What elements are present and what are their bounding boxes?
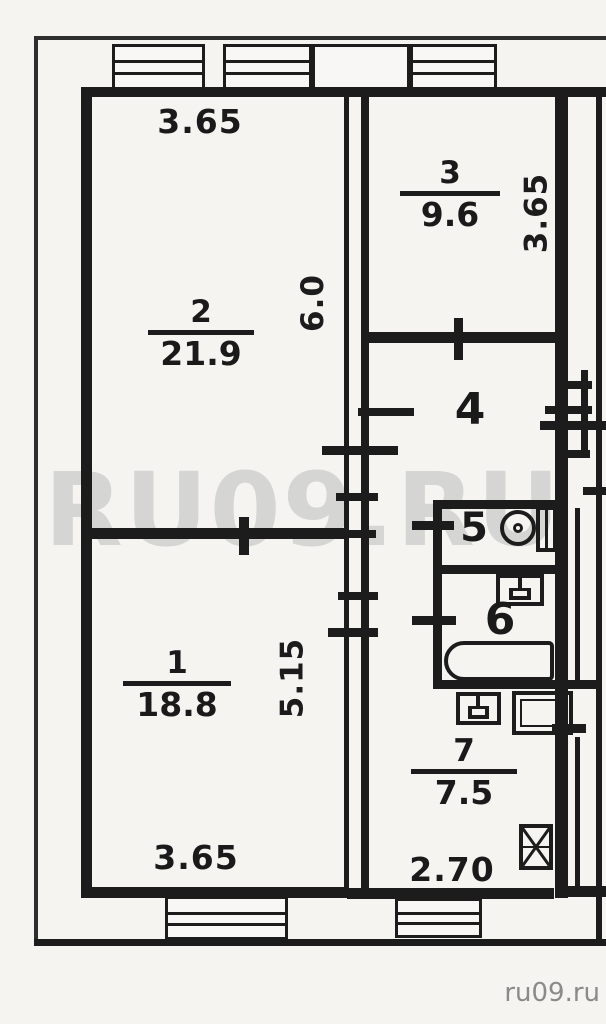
vent-shaft-icon <box>519 824 553 870</box>
site-watermark-text: ru09.ru <box>488 978 600 1008</box>
door-opening-tick <box>454 318 463 360</box>
dimension-room3-height: 3.65 <box>508 162 564 264</box>
dimension-room2-height: 6.0 <box>282 270 344 336</box>
window-symbol <box>223 44 312 90</box>
room-label-6: 6 <box>478 598 522 642</box>
room-label-1: 1 18.8 <box>120 648 234 722</box>
room-number: 7 <box>453 736 475 766</box>
wall-center-outer-line <box>361 87 369 888</box>
wall-wc-bath-divider <box>433 565 558 574</box>
window-mullion <box>412 60 495 63</box>
dimension-top-width: 3.65 <box>140 102 260 141</box>
dimension-room1-height: 5.15 <box>262 628 322 728</box>
room-area: 21.9 <box>160 337 241 371</box>
wall-room1-room2-divider <box>81 528 345 539</box>
floor-plan-scan: RU09.RU <box>0 0 606 1024</box>
door-opening-tick <box>328 628 378 637</box>
toilet-tank-line <box>545 509 548 549</box>
window-mullion <box>397 912 480 915</box>
door-opening-tick <box>338 530 376 538</box>
room-label-5: 5 <box>452 506 496 550</box>
room-label-2: 2 21.9 <box>146 297 256 371</box>
window-mullion <box>114 60 203 63</box>
outer-wall-left <box>34 36 38 946</box>
room-number: 3 <box>439 158 461 188</box>
outer-wall-right <box>596 88 602 939</box>
shaft-line-upper <box>575 508 580 688</box>
dimension-kitchen-bottom-width: 2.70 <box>396 850 508 889</box>
room-label-4: 4 <box>444 388 496 432</box>
toilet-bowl-center <box>513 523 523 533</box>
room-number: 2 <box>190 297 212 327</box>
window-mullion <box>225 72 310 75</box>
toilet-tank <box>536 506 562 552</box>
toilet-tank-line <box>553 509 556 549</box>
door-opening-tick <box>336 493 378 501</box>
window-mullion <box>114 72 203 75</box>
dimension-room1-bottom-width: 3.65 <box>138 838 254 877</box>
door-opening-tick <box>239 517 249 555</box>
door-opening-tick <box>412 616 456 625</box>
door-opening-tick <box>322 446 398 455</box>
outer-wall-top <box>34 36 606 40</box>
window-symbol <box>165 896 288 940</box>
window-symbol <box>112 44 205 90</box>
wall-left <box>81 87 92 898</box>
room-label-3: 3 9.6 <box>398 158 502 232</box>
bathtub-icon <box>444 641 554 681</box>
window-symbol <box>410 44 497 90</box>
outer-wall-bottom <box>34 939 606 946</box>
entrance-door-tick <box>540 421 606 430</box>
kitchen-sink-icon <box>456 692 501 725</box>
window-mullion <box>225 60 310 63</box>
door-opening-tick <box>558 381 592 389</box>
wall-bottom-right-stub <box>568 886 606 897</box>
door-opening-tick <box>412 521 454 530</box>
door-opening-tick <box>338 592 378 600</box>
window-mullion <box>167 912 286 915</box>
room-label-7: 7 7.5 <box>410 736 518 810</box>
door-opening-tick <box>358 408 414 416</box>
shaft-line-lower <box>575 737 580 890</box>
window-mullion <box>397 922 480 925</box>
wall-center-inner-line <box>344 87 349 888</box>
room-area: 18.8 <box>136 688 217 722</box>
door-opening-tick <box>558 450 590 458</box>
window-mullion <box>412 72 495 75</box>
kitchen-sink-bowl <box>468 706 489 719</box>
room-number: 1 <box>166 648 188 678</box>
landing-stub <box>583 487 606 495</box>
window-mullion <box>167 923 286 926</box>
window-symbol <box>395 898 482 938</box>
balcony-door-symbol <box>312 44 410 90</box>
door-opening-tick <box>545 406 592 414</box>
room-area: 9.6 <box>421 198 479 232</box>
wall-bath-bottom <box>433 680 602 689</box>
stove-inner <box>520 699 565 727</box>
toilet-icon <box>500 506 566 554</box>
room-area: 7.5 <box>435 776 493 810</box>
stove-icon <box>512 691 573 735</box>
